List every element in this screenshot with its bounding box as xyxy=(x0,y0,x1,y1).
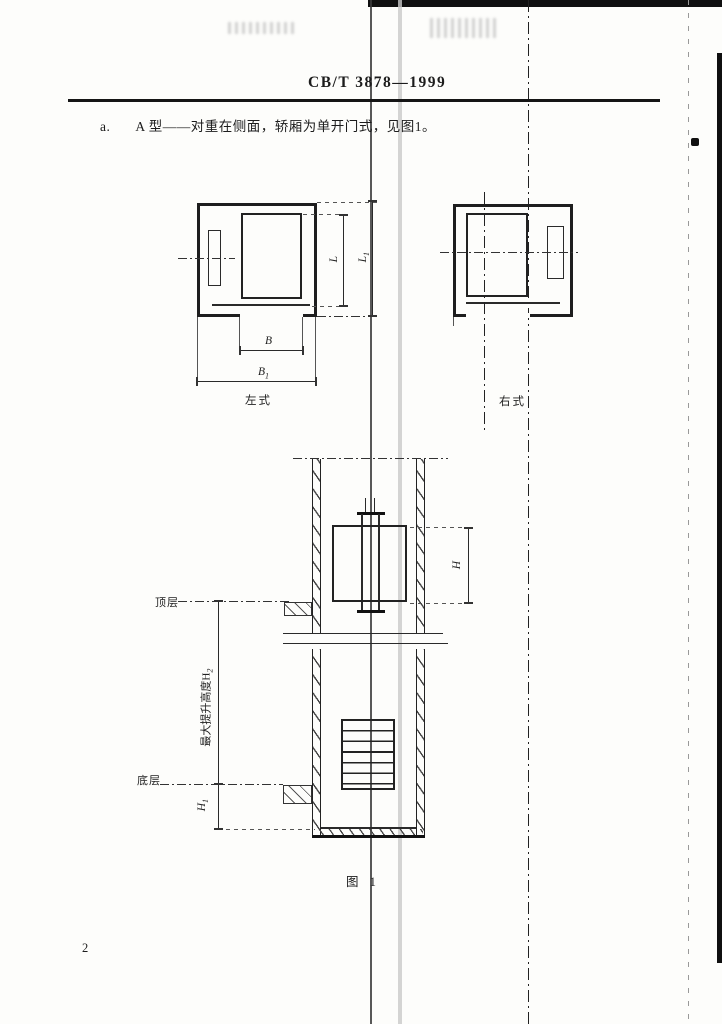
plan-left-type-label: 左式 xyxy=(245,392,272,408)
figure-caption: 图 1 xyxy=(346,871,380,890)
plan-right-car xyxy=(466,213,528,297)
elev-car xyxy=(332,525,407,602)
page-number: 2 xyxy=(82,941,88,956)
elev-top-floor-slab xyxy=(284,602,312,616)
pit-level-connector xyxy=(218,829,315,830)
plan-right-sill-line xyxy=(466,302,560,304)
elev-ram-bottom-flange xyxy=(357,610,385,613)
scanned-standard-page: CB/T 3878—1999 a. A 型——对重在侧面，轿厢为单开门式，见图1… xyxy=(0,0,722,1024)
dim-B1-tick-right xyxy=(315,377,317,386)
dim-L1-tick-bottom xyxy=(368,315,377,317)
dim-B1-tick-left xyxy=(196,377,198,386)
clause-text: A 型——对重在侧面，轿厢为单开门式，见图1。 xyxy=(135,119,436,134)
scan-ink-dot xyxy=(691,138,699,146)
dim-travel-line xyxy=(218,601,219,830)
elev-pit-bottom-line xyxy=(312,835,425,838)
plan-right-centerline-v xyxy=(484,192,485,430)
plan-right-corner-stub xyxy=(453,317,454,326)
plan-left-car xyxy=(241,213,302,299)
dim-B-tick-right xyxy=(302,346,304,355)
clause-line: a. A 型——对重在侧面，轿厢为单开门式，见图1。 xyxy=(100,115,436,135)
dim-L1-tick-top xyxy=(368,200,377,202)
elev-break-line-1 xyxy=(283,633,443,634)
dim-B-label: B xyxy=(265,335,272,349)
top-floor-label: 顶层 xyxy=(155,594,179,610)
dim-L-line xyxy=(343,215,344,307)
elev-bottom-floor-slab xyxy=(283,785,312,804)
dim-B1-line xyxy=(197,381,317,382)
dim-L-tick-bottom xyxy=(339,305,348,307)
elev-right-wall-upper xyxy=(416,459,425,633)
plan-right-type-label: 右式 xyxy=(499,393,526,409)
dim-travel-label: 最大提升高度H2 xyxy=(197,658,214,758)
scan-right-black-bar xyxy=(717,53,722,963)
dim-B-tick-left xyxy=(239,346,241,355)
dim-H-tick-bottom xyxy=(464,602,473,604)
elev-ram-stub-right xyxy=(374,498,375,513)
plan-left-ext-right xyxy=(315,317,316,383)
elev-ram-stub-left xyxy=(365,498,366,513)
scan-fold-line-gray xyxy=(398,0,402,1024)
dim-travel-tick-mid xyxy=(214,783,223,785)
dim-H1-label: H1 xyxy=(196,790,210,820)
dim-H-connector-top xyxy=(410,527,472,528)
dim-H-label: H xyxy=(451,557,465,573)
plan-right-door-gap xyxy=(466,313,530,318)
dim-travel-tick-top xyxy=(214,600,223,602)
scan-smudge-left xyxy=(228,22,296,34)
dim-L-label: L xyxy=(328,251,342,267)
elev-left-wall-upper xyxy=(312,459,321,633)
dim-L-tick-top xyxy=(339,214,348,216)
top-floor-level-line xyxy=(178,601,290,602)
plan-left-cw-centerline xyxy=(178,258,235,259)
dim-H-tick-top xyxy=(464,527,473,529)
scan-fold-line-3 xyxy=(688,0,689,1024)
elev-right-wall-lower xyxy=(416,649,425,837)
plan-right-centerline-h xyxy=(440,252,578,253)
standard-number: CB/T 3878—1999 xyxy=(308,74,446,92)
header-rule xyxy=(68,99,660,102)
dim-L1-connector-top xyxy=(317,202,377,203)
dim-L1-line xyxy=(372,200,373,317)
bottom-floor-label: 底层 xyxy=(137,772,161,788)
dim-B-line xyxy=(240,350,303,351)
dim-B1-label: B1 xyxy=(258,366,269,380)
clause-label: a. xyxy=(100,119,110,134)
scan-smudge-right xyxy=(430,18,496,38)
elev-left-wall-lower xyxy=(312,649,321,837)
elev-counterweight-stack xyxy=(341,719,395,790)
elev-break-line-2 xyxy=(283,643,448,644)
dim-L1-label: L1 xyxy=(357,245,371,269)
dim-H-line xyxy=(468,528,469,604)
plan-left-sill-line xyxy=(212,304,310,306)
dim-H-connector-bottom xyxy=(410,603,472,604)
plan-left-door-gap xyxy=(240,313,303,318)
scan-fold-line-2 xyxy=(528,0,529,1024)
scan-top-black-bar xyxy=(368,0,722,7)
plan-left-ext-left xyxy=(197,317,198,383)
dim-travel-tick-bottom xyxy=(214,828,223,830)
